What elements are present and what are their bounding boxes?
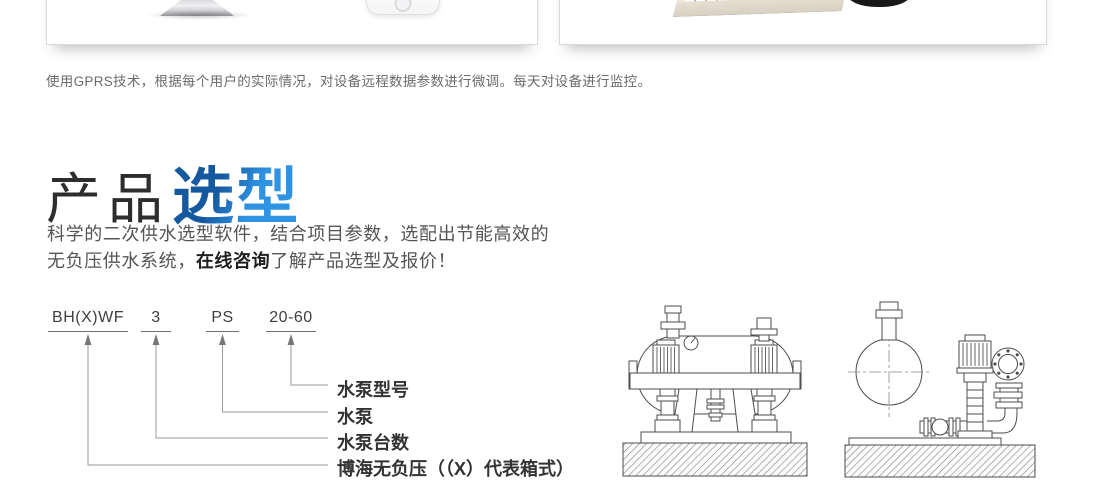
- model-code-pump: PS: [206, 309, 239, 332]
- section-description: 科学的二次供水选型软件，结合项目参数，选配出节能高效的无负压供水系统，在线咨询了…: [47, 221, 561, 275]
- keyboard-image: [671, 0, 850, 17]
- label-pump-model: 水泵型号: [337, 376, 409, 402]
- model-code-pump-count: 3: [141, 309, 171, 332]
- tank-and-vertical-pump-drawing: [843, 300, 1095, 490]
- online-consult-link[interactable]: 在线咨询: [196, 251, 270, 271]
- tank-pump-unit-drawing: [617, 303, 813, 481]
- monitor-stand-shadow: [145, 10, 253, 20]
- description-text-2: 了解产品选型及报价！: [270, 251, 456, 271]
- gprs-caption: 使用GPRS技术，根据每个用户的实际情况，对设备远程数据参数进行微调。每天对设备…: [46, 70, 651, 90]
- photo-card-computer: [46, 0, 538, 45]
- mouse-image: [847, 0, 911, 7]
- product-selection-section: 使用GPRS技术，根据每个用户的实际情况，对设备远程数据参数进行微调。每天对设备…: [0, 0, 1100, 495]
- model-code-pump-model: 20-60: [266, 309, 316, 332]
- label-pump-count: 水泵台数: [337, 429, 409, 455]
- phone-bottom-image: [366, 0, 440, 15]
- phone-home-button-icon: [395, 0, 412, 12]
- label-series-name: 博海无负压（（X）代表箱式）: [337, 455, 574, 481]
- keyboard-keys: [685, 0, 841, 2]
- photo-card-keyboard: [559, 0, 1047, 45]
- label-pump: 水泵: [337, 403, 373, 429]
- model-code-series: BH(X)WF: [48, 309, 128, 332]
